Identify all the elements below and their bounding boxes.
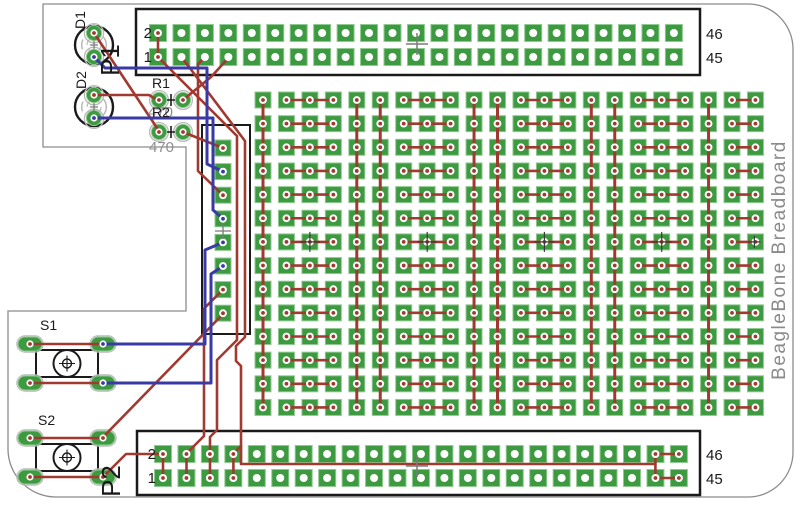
drill-center xyxy=(660,169,664,173)
drill-hole xyxy=(646,53,654,61)
drill-center xyxy=(754,311,758,315)
drill-center xyxy=(636,264,640,268)
drill-center xyxy=(378,98,382,102)
refdes-p1: P1 xyxy=(95,44,125,76)
drill-center xyxy=(221,288,225,292)
drill-center xyxy=(285,98,289,102)
drill-center xyxy=(519,145,523,149)
drill-center xyxy=(378,169,382,173)
drill-center xyxy=(519,335,523,339)
drill-center xyxy=(496,145,500,149)
drill-center xyxy=(543,122,547,126)
drill-center xyxy=(261,382,265,386)
drill-center xyxy=(378,193,382,197)
drill-center xyxy=(261,169,265,173)
drill-center xyxy=(331,358,335,362)
drill-center xyxy=(161,476,165,480)
drill-center xyxy=(730,122,734,126)
drill-hole xyxy=(318,29,326,37)
drill-center xyxy=(754,358,758,362)
drill-center xyxy=(543,193,547,197)
drill-center xyxy=(285,216,289,220)
drill-center xyxy=(660,98,664,102)
drill-center xyxy=(402,122,406,126)
drill-center xyxy=(101,436,105,440)
drill-center xyxy=(308,382,312,386)
drill-center xyxy=(636,98,640,102)
drill-center xyxy=(754,287,758,291)
drill-center xyxy=(660,358,664,362)
drill-center xyxy=(472,311,476,315)
drill-center xyxy=(613,358,617,362)
drill-center xyxy=(496,98,500,102)
drill-center xyxy=(730,264,734,268)
drill-center xyxy=(331,122,335,126)
drill-center xyxy=(425,335,429,339)
drill-center xyxy=(660,122,664,126)
drill-center xyxy=(378,382,382,386)
drill-center xyxy=(519,406,523,410)
drill-center xyxy=(355,193,359,197)
drill-hole xyxy=(646,29,654,37)
drill-center xyxy=(683,145,687,149)
drill-center xyxy=(730,98,734,102)
drill-center xyxy=(707,145,711,149)
drill-center xyxy=(754,335,758,339)
drill-hole xyxy=(394,450,402,458)
drill-center xyxy=(683,240,687,244)
drill-center xyxy=(543,358,547,362)
drill-center xyxy=(221,217,225,221)
drill-hole xyxy=(271,29,279,37)
drill-center xyxy=(543,145,547,149)
drill-center xyxy=(707,382,711,386)
drill-hole xyxy=(370,450,378,458)
drill-center xyxy=(707,240,711,244)
drill-hole xyxy=(600,29,608,37)
drill-center xyxy=(308,311,312,315)
drill-center xyxy=(519,240,523,244)
board-name-text: BeagleBone Breadboard xyxy=(769,140,790,380)
drill-center xyxy=(496,335,500,339)
drill-center xyxy=(636,358,640,362)
drill-center xyxy=(496,264,500,268)
drill-center xyxy=(566,122,570,126)
drill-center xyxy=(589,216,593,220)
drill-center xyxy=(589,406,593,410)
drill-center xyxy=(261,287,265,291)
drill-center xyxy=(261,358,265,362)
drill-hole xyxy=(417,474,425,482)
drill-center xyxy=(589,122,593,126)
drill-center xyxy=(660,406,664,410)
drill-center xyxy=(566,145,570,149)
drill-hole xyxy=(529,53,537,61)
drill-center xyxy=(589,287,593,291)
drill-center xyxy=(566,382,570,386)
drill-center xyxy=(566,335,570,339)
refdes-p2: P2 xyxy=(96,465,126,497)
refdes-d1: D1 xyxy=(72,11,88,29)
drill-center xyxy=(566,169,570,173)
drill-center xyxy=(660,145,664,149)
drill-center xyxy=(425,311,429,315)
drill-center xyxy=(566,287,570,291)
drill-center xyxy=(402,98,406,102)
refdes-r2: R2 xyxy=(152,104,170,120)
drill-center xyxy=(425,406,429,410)
drill-center xyxy=(730,240,734,244)
drill-center xyxy=(730,145,734,149)
drill-center xyxy=(496,382,500,386)
drill-center xyxy=(92,31,96,35)
drill-center xyxy=(589,358,593,362)
drill-center xyxy=(754,122,758,126)
refdes-r1: R1 xyxy=(152,75,170,91)
drill-center xyxy=(355,169,359,173)
drill-center xyxy=(101,381,105,385)
pcb-layout-canvas[interactable]: 470 D1 D2 R1 R2 470 S1 S2 P1 P2 2 1 46 4… xyxy=(0,0,800,508)
drill-center xyxy=(331,382,335,386)
drill-center xyxy=(613,193,617,197)
drill-center xyxy=(378,145,382,149)
drill-center xyxy=(261,240,265,244)
drill-center xyxy=(308,145,312,149)
drill-hole xyxy=(342,29,350,37)
drill-center xyxy=(566,193,570,197)
drill-center xyxy=(707,264,711,268)
drill-center xyxy=(660,193,664,197)
drill-center xyxy=(449,145,453,149)
drill-hole xyxy=(253,474,261,482)
drill-center xyxy=(519,98,523,102)
drill-center xyxy=(157,130,161,134)
drill-center xyxy=(683,216,687,220)
origin-cross xyxy=(59,450,75,466)
drill-center xyxy=(402,406,406,410)
drill-center xyxy=(707,98,711,102)
drill-hole xyxy=(553,53,561,61)
drill-hole xyxy=(323,450,331,458)
p2-pin-label-46: 46 xyxy=(706,447,723,464)
drill-hole xyxy=(389,53,397,61)
drill-center xyxy=(683,406,687,410)
drill-center xyxy=(355,145,359,149)
drill-center xyxy=(613,240,617,244)
drill-center xyxy=(543,264,547,268)
drill-hole xyxy=(412,29,420,37)
drill-center xyxy=(285,145,289,149)
drill-center xyxy=(707,169,711,173)
drill-center xyxy=(285,169,289,173)
drill-hole xyxy=(389,29,397,37)
drill-center xyxy=(543,216,547,220)
drill-center xyxy=(331,287,335,291)
drill-center xyxy=(221,170,225,174)
drill-center xyxy=(231,476,235,480)
drill-center xyxy=(589,335,593,339)
drill-center xyxy=(378,406,382,410)
drill-center xyxy=(707,287,711,291)
drill-center xyxy=(677,476,681,480)
drill-center xyxy=(308,122,312,126)
drill-center xyxy=(472,335,476,339)
drill-center xyxy=(543,169,547,173)
drill-hole xyxy=(224,53,232,61)
drill-center xyxy=(331,216,335,220)
drill-center xyxy=(449,98,453,102)
drill-hole xyxy=(440,450,448,458)
drill-center xyxy=(730,287,734,291)
drill-center xyxy=(730,311,734,315)
drill-hole xyxy=(201,53,209,61)
drill-center xyxy=(683,311,687,315)
drill-center xyxy=(285,264,289,268)
drill-center xyxy=(331,169,335,173)
drill-center xyxy=(519,358,523,362)
drill-hole xyxy=(177,29,185,37)
drill-center xyxy=(425,287,429,291)
drill-hole xyxy=(623,53,631,61)
drill-center xyxy=(496,287,500,291)
drill-center xyxy=(660,287,664,291)
drill-center xyxy=(331,240,335,244)
drill-center xyxy=(156,55,160,59)
drill-center xyxy=(425,169,429,173)
drill-center xyxy=(449,382,453,386)
drill-center xyxy=(519,287,523,291)
drill-center xyxy=(636,169,640,173)
drill-center xyxy=(683,122,687,126)
drill-center xyxy=(101,342,105,346)
drill-hole xyxy=(534,450,542,458)
drill-center xyxy=(660,311,664,315)
drill-center xyxy=(425,358,429,362)
drill-center xyxy=(402,287,406,291)
drill-center xyxy=(496,216,500,220)
drill-center xyxy=(754,145,758,149)
drill-center xyxy=(613,311,617,315)
drill-center xyxy=(378,216,382,220)
drill-center xyxy=(355,358,359,362)
drill-center xyxy=(308,193,312,197)
drill-center xyxy=(425,382,429,386)
drill-hole xyxy=(347,450,355,458)
refdes-s2: S2 xyxy=(38,412,55,428)
drill-hole xyxy=(628,450,636,458)
drill-center xyxy=(707,335,711,339)
drill-center xyxy=(285,406,289,410)
drill-center xyxy=(28,475,32,479)
drill-hole xyxy=(605,474,613,482)
drill-hole xyxy=(295,29,303,37)
drill-center xyxy=(161,452,165,456)
drill-center xyxy=(472,145,476,149)
drill-center xyxy=(208,476,212,480)
drill-hole xyxy=(558,474,566,482)
board-outline[interactable] xyxy=(8,4,793,497)
drill-center xyxy=(185,452,189,456)
drill-center xyxy=(519,193,523,197)
drill-hole xyxy=(600,53,608,61)
drill-center xyxy=(519,311,523,315)
p1-pin-label-45: 45 xyxy=(706,50,723,67)
drill-center xyxy=(589,193,593,197)
drill-center xyxy=(496,122,500,126)
drill-center xyxy=(636,240,640,244)
drill-center xyxy=(378,264,382,268)
drill-hole xyxy=(511,474,519,482)
drill-hole xyxy=(459,29,467,37)
drill-center xyxy=(355,287,359,291)
drill-center xyxy=(730,358,734,362)
drill-center xyxy=(185,476,189,480)
drill-hole xyxy=(347,474,355,482)
drill-center xyxy=(589,98,593,102)
trace-blue[interactable] xyxy=(103,242,223,344)
drill-center xyxy=(519,169,523,173)
drill-center xyxy=(449,311,453,315)
drill-center xyxy=(355,335,359,339)
drill-center xyxy=(378,122,382,126)
drill-hole xyxy=(295,53,303,61)
drill-center xyxy=(331,311,335,315)
drill-center xyxy=(472,122,476,126)
drill-hole xyxy=(482,29,490,37)
drill-hole xyxy=(435,53,443,61)
drill-hole xyxy=(487,474,495,482)
drill-center xyxy=(683,264,687,268)
drill-hole xyxy=(365,29,373,37)
drill-center xyxy=(308,406,312,410)
drill-center xyxy=(566,311,570,315)
drill-center xyxy=(355,406,359,410)
p2-pin-label-45: 45 xyxy=(706,471,723,488)
refdes-s1: S1 xyxy=(40,317,57,333)
drill-center xyxy=(472,382,476,386)
drill-hole xyxy=(342,53,350,61)
drill-center xyxy=(636,311,640,315)
drill-center xyxy=(496,193,500,197)
drill-center xyxy=(331,98,335,102)
drill-hole xyxy=(576,53,584,61)
drill-center xyxy=(613,216,617,220)
drill-hole xyxy=(459,53,467,61)
drill-hole xyxy=(670,29,678,37)
drill-center xyxy=(308,358,312,362)
drill-center xyxy=(378,311,382,315)
drill-hole xyxy=(482,53,490,61)
drill-center xyxy=(589,382,593,386)
drill-center xyxy=(355,240,359,244)
drill-center xyxy=(613,264,617,268)
drill-hole xyxy=(534,474,542,482)
drill-hole xyxy=(318,53,326,61)
drill-center xyxy=(402,193,406,197)
drill-center xyxy=(707,406,711,410)
drill-center xyxy=(613,169,617,173)
drill-center xyxy=(683,98,687,102)
drill-hole xyxy=(417,450,425,458)
drill-center xyxy=(519,382,523,386)
drill-center xyxy=(261,145,265,149)
drill-hole xyxy=(271,53,279,61)
drill-center xyxy=(28,342,32,346)
drill-hole xyxy=(605,450,613,458)
drill-center xyxy=(543,335,547,339)
drill-hole xyxy=(276,450,284,458)
drill-center xyxy=(181,130,185,134)
drill-center xyxy=(683,169,687,173)
drill-center xyxy=(378,335,382,339)
drill-center xyxy=(92,93,96,97)
drill-center xyxy=(613,98,617,102)
drill-center xyxy=(683,382,687,386)
drill-hole xyxy=(670,53,678,61)
drill-center xyxy=(402,335,406,339)
drill-hole xyxy=(224,29,232,37)
p1-pin-label-2: 2 xyxy=(144,25,152,42)
drill-hole xyxy=(558,450,566,458)
drill-center xyxy=(589,169,593,173)
drill-center xyxy=(28,381,32,385)
drill-hole xyxy=(177,53,185,61)
drill-center xyxy=(613,335,617,339)
drill-center xyxy=(285,240,289,244)
drill-center xyxy=(636,216,640,220)
drill-center xyxy=(754,193,758,197)
drill-center xyxy=(425,193,429,197)
drill-center xyxy=(613,382,617,386)
drill-center xyxy=(660,264,664,268)
drill-center xyxy=(472,358,476,362)
drill-hole xyxy=(365,53,373,61)
drill-center xyxy=(683,358,687,362)
drill-center xyxy=(331,335,335,339)
drill-center xyxy=(402,169,406,173)
drill-center xyxy=(261,264,265,268)
drill-center xyxy=(613,145,617,149)
drill-center xyxy=(543,311,547,315)
drill-hole xyxy=(553,29,561,37)
drill-center xyxy=(308,335,312,339)
drill-hole xyxy=(506,53,514,61)
drill-center xyxy=(261,98,265,102)
p2-pin-label-2: 2 xyxy=(148,446,156,463)
drill-center xyxy=(231,452,235,456)
drill-center xyxy=(261,311,265,315)
drill-center xyxy=(425,122,429,126)
drill-center xyxy=(754,98,758,102)
drill-center xyxy=(472,406,476,410)
drill-hole xyxy=(628,474,636,482)
drill-center xyxy=(261,216,265,220)
drill-hole xyxy=(529,29,537,37)
drill-center xyxy=(730,193,734,197)
drill-center xyxy=(308,169,312,173)
drill-hole xyxy=(248,53,256,61)
drill-center xyxy=(157,98,161,102)
drill-center xyxy=(472,193,476,197)
drill-center xyxy=(261,406,265,410)
drill-center xyxy=(496,358,500,362)
drill-center xyxy=(589,240,593,244)
drill-center xyxy=(472,216,476,220)
drill-hole xyxy=(623,29,631,37)
drill-center xyxy=(754,216,758,220)
drill-center xyxy=(496,406,500,410)
drill-center xyxy=(308,264,312,268)
